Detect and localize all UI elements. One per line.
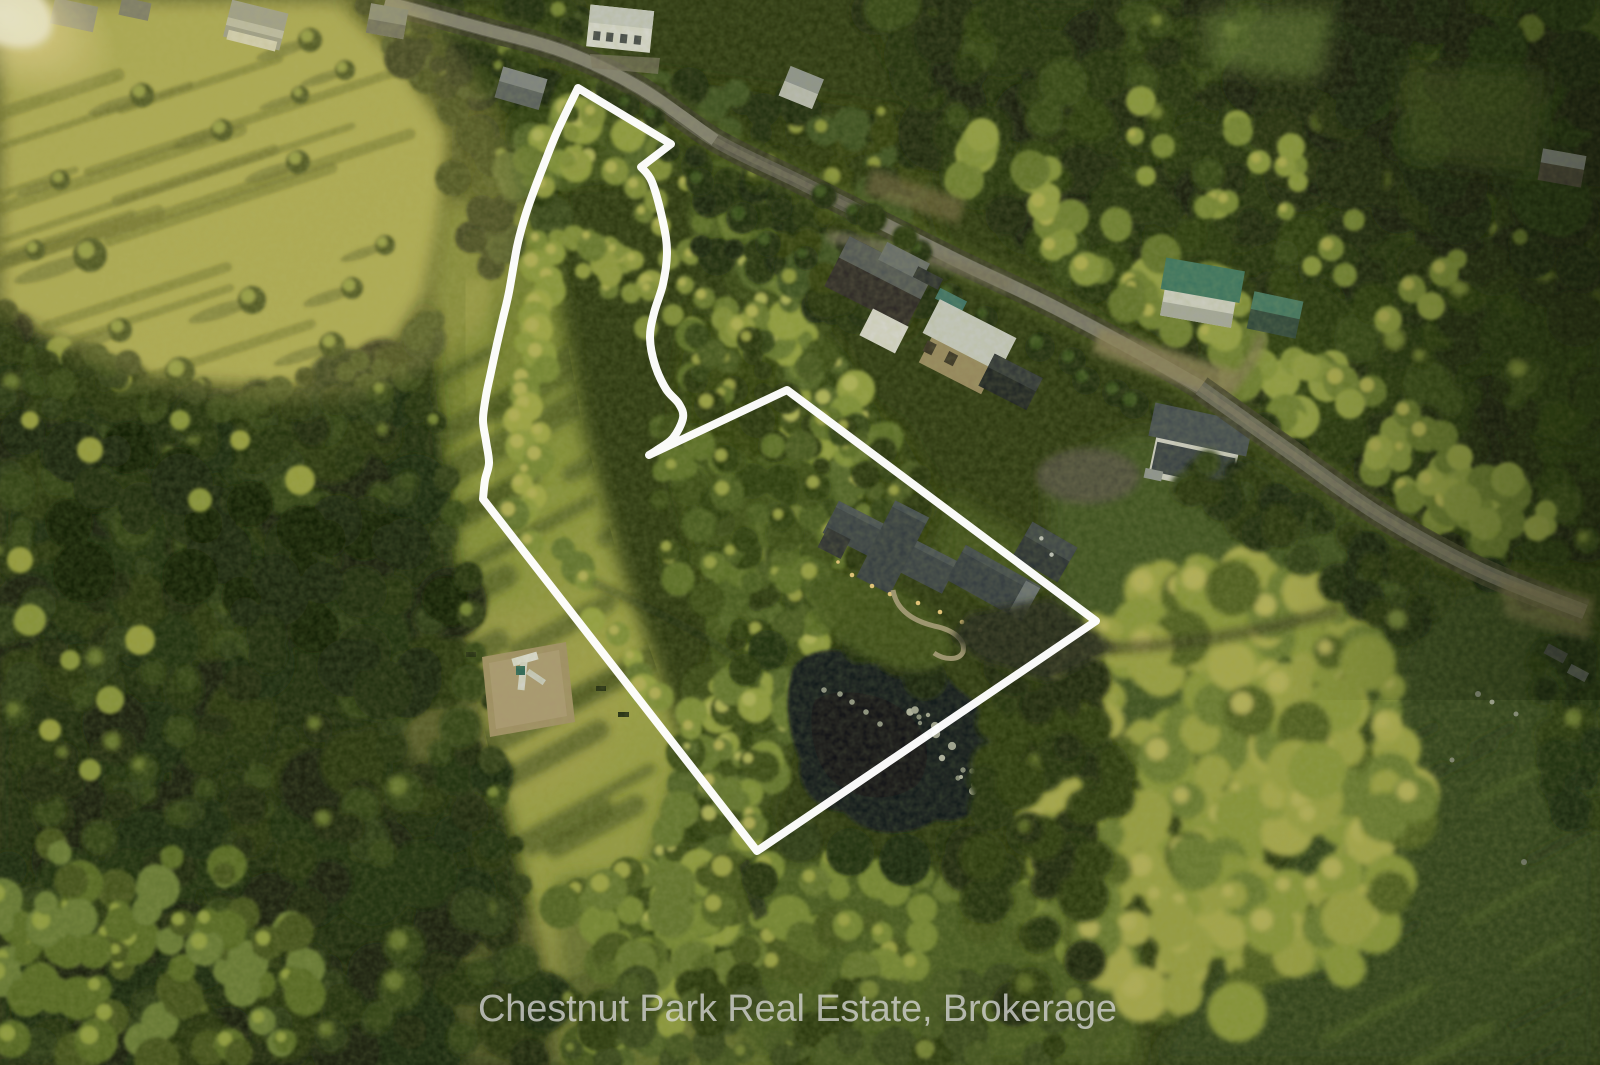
svg-text:Chestnut Park Real Estate, Bro: Chestnut Park Real Estate, Brokerage	[478, 988, 1117, 1030]
